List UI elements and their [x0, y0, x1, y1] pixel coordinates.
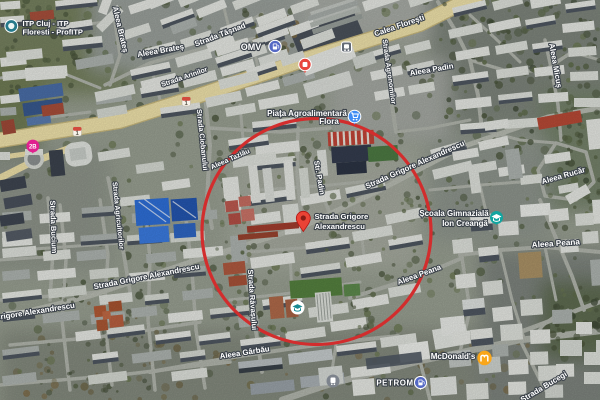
svg-text:Alexandrescu: Alexandrescu: [315, 222, 366, 231]
svg-text:Flora: Flora: [319, 117, 339, 126]
svg-text:Strada Bucium: Strada Bucium: [48, 200, 59, 254]
svg-text:OMV: OMV: [241, 42, 262, 52]
svg-text:Școala Gimnazială: Școala Gimnazială: [419, 209, 489, 218]
svg-text:Floresti - ProfITP: Floresti - ProfITP: [23, 28, 83, 37]
svg-text:ITP Cluj - ITP: ITP Cluj - ITP: [23, 19, 69, 28]
svg-text:Strada Grigore: Strada Grigore: [315, 212, 370, 221]
svg-text:McDonald's: McDonald's: [431, 352, 476, 361]
svg-text:2B: 2B: [29, 144, 37, 150]
svg-text:PETROM: PETROM: [376, 379, 413, 388]
svg-text:Ion Creangă: Ion Creangă: [442, 219, 488, 228]
